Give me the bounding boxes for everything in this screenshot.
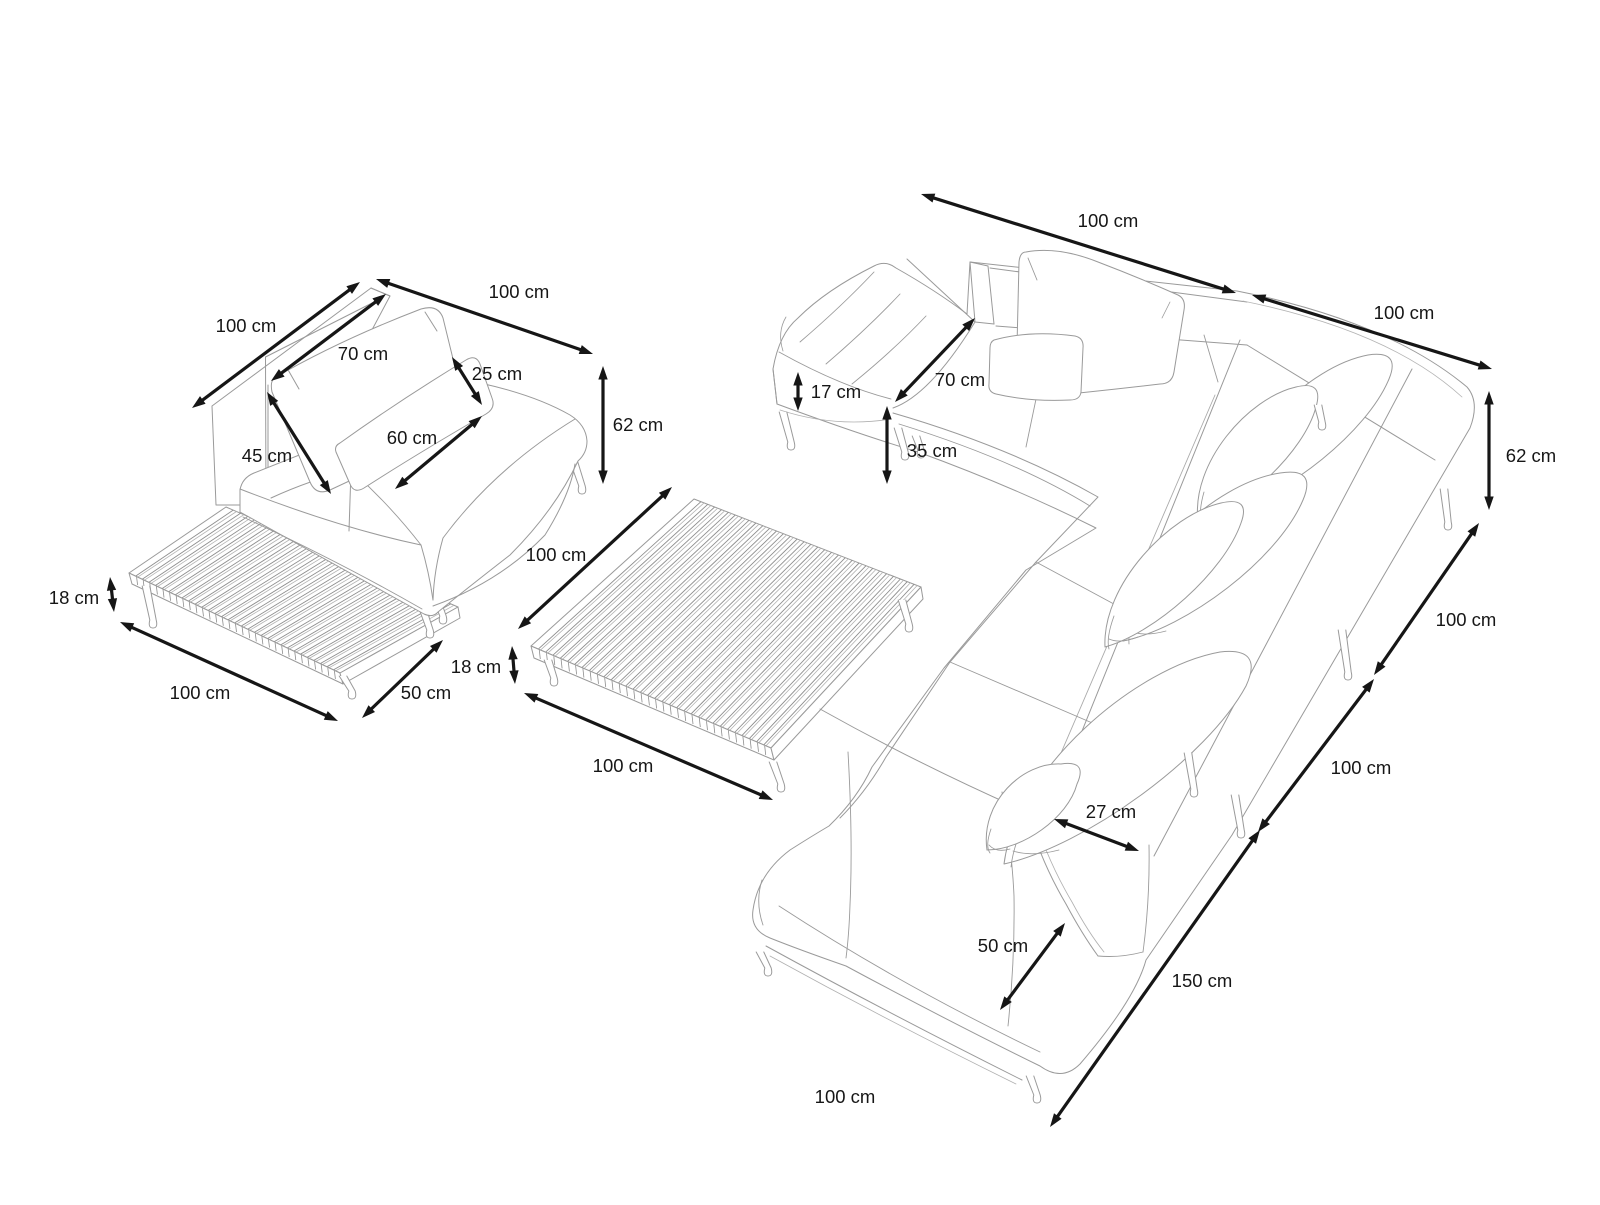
- svg-text:17 cm: 17 cm: [811, 381, 861, 402]
- svg-text:35 cm: 35 cm: [907, 440, 957, 461]
- svg-text:100 cm: 100 cm: [216, 315, 277, 336]
- svg-text:18 cm: 18 cm: [451, 656, 501, 677]
- svg-text:100 cm: 100 cm: [593, 755, 654, 776]
- svg-text:100 cm: 100 cm: [170, 682, 231, 703]
- svg-text:100 cm: 100 cm: [1374, 302, 1435, 323]
- svg-text:45 cm: 45 cm: [242, 445, 292, 466]
- svg-text:25 cm: 25 cm: [472, 363, 522, 384]
- svg-text:70 cm: 70 cm: [338, 343, 388, 364]
- svg-text:100 cm: 100 cm: [526, 544, 587, 565]
- svg-text:100 cm: 100 cm: [1436, 609, 1497, 630]
- svg-text:150 cm: 150 cm: [1172, 970, 1233, 991]
- svg-text:18 cm: 18 cm: [49, 587, 99, 608]
- svg-text:62 cm: 62 cm: [613, 414, 663, 435]
- svg-text:70 cm: 70 cm: [935, 369, 985, 390]
- svg-text:100 cm: 100 cm: [815, 1086, 876, 1107]
- svg-text:100 cm: 100 cm: [489, 281, 550, 302]
- svg-text:62 cm: 62 cm: [1506, 445, 1556, 466]
- svg-text:100 cm: 100 cm: [1078, 210, 1139, 231]
- svg-text:100 cm: 100 cm: [1331, 757, 1392, 778]
- svg-text:50 cm: 50 cm: [978, 935, 1028, 956]
- svg-text:27 cm: 27 cm: [1086, 801, 1136, 822]
- svg-text:50 cm: 50 cm: [401, 682, 451, 703]
- svg-text:60 cm: 60 cm: [387, 427, 437, 448]
